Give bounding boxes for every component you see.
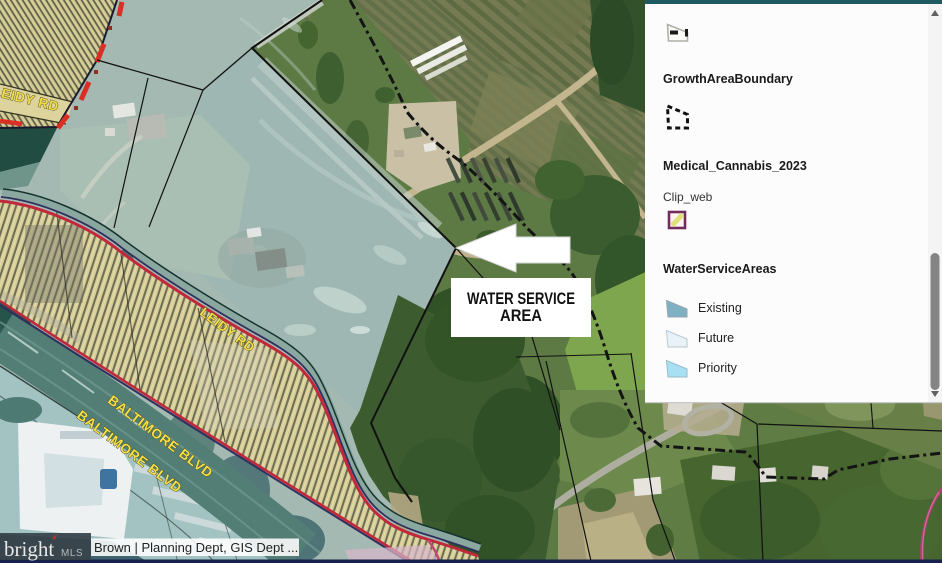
svg-text:Brown | Planning Dept, GIS Dep: Brown | Planning Dept, GIS Dept ... (94, 540, 298, 555)
svg-text:Future: Future (698, 331, 734, 345)
svg-text:Clip_web: Clip_web (663, 190, 713, 204)
svg-text:WaterServiceAreas: WaterServiceAreas (663, 262, 777, 276)
svg-text:MLS: MLS (61, 548, 83, 559)
svg-text:GrowthAreaBoundary: GrowthAreaBoundary (663, 72, 793, 86)
svg-text:Existing: Existing (698, 301, 742, 315)
svg-text:AREA: AREA (500, 306, 542, 325)
svg-text:Priority: Priority (698, 361, 738, 375)
svg-text:Medical_Cannabis_2023: Medical_Cannabis_2023 (663, 159, 807, 173)
svg-text:bright: bright (4, 537, 54, 561)
